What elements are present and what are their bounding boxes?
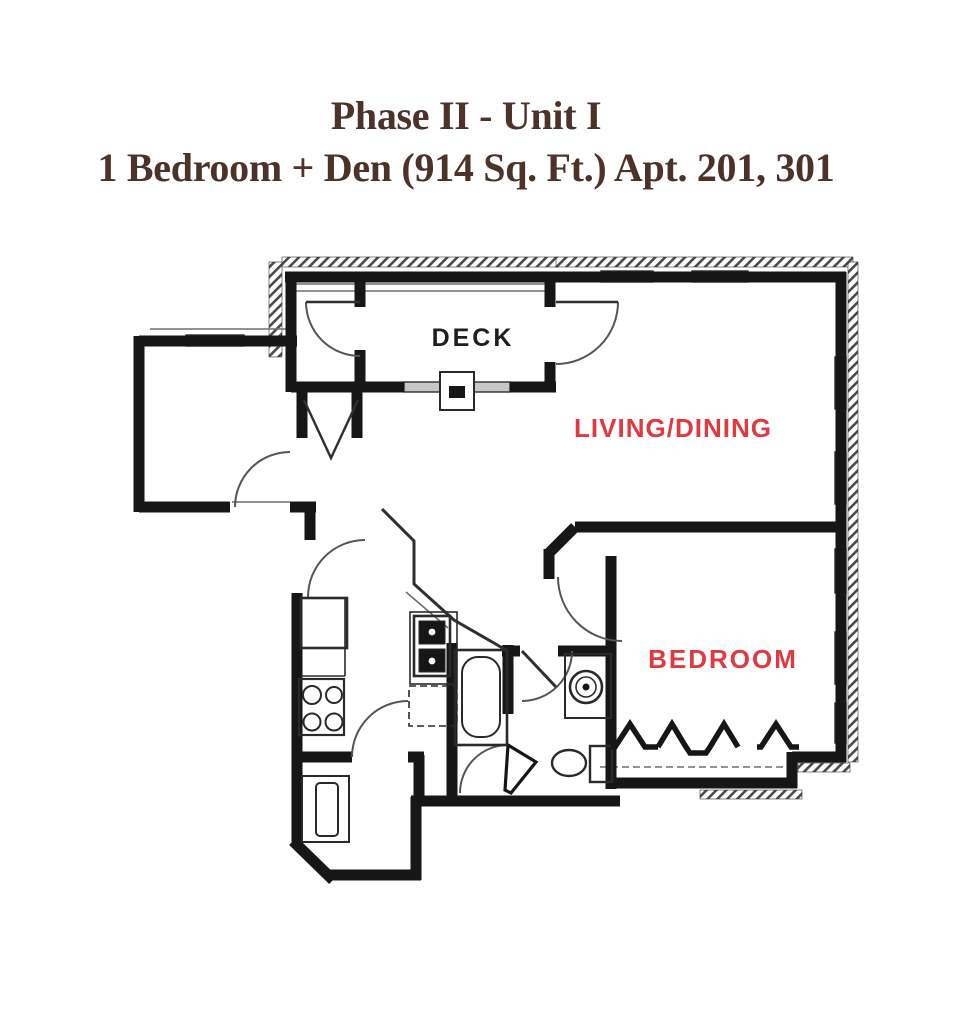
room-label-bedroom: BEDROOM (648, 644, 798, 674)
hanger-symbol (611, 724, 658, 747)
room-label-deck: DECK (432, 324, 515, 352)
page-title-line2: 1 Bedroom + Den (914 Sq. Ft.) Apt. 201, … (98, 145, 835, 190)
title-block: Phase II - Unit I 1 Bedroom + Den (914 S… (98, 93, 835, 190)
fridge (301, 598, 347, 648)
hanger-symbol (658, 724, 738, 753)
stove-burner (304, 714, 321, 731)
hall-kitchen-door-arc (308, 540, 365, 597)
sink-drain (429, 629, 436, 636)
closet-hangers (611, 724, 799, 753)
washer (316, 783, 338, 836)
deck-box-inner (449, 386, 465, 398)
bathroom-door-leaf (522, 651, 556, 687)
hanger-symbol (757, 724, 799, 747)
storage-door-arc (306, 302, 360, 356)
walls-layer (139, 272, 846, 880)
sink-drain (429, 658, 436, 665)
hatch-deck-top (282, 257, 558, 267)
stove-burner (303, 686, 321, 704)
toilet-bowl (552, 750, 586, 776)
floor-plan-page: Phase II - Unit I 1 Bedroom + Den (914 S… (0, 0, 960, 1024)
bifold-closet-door (304, 400, 358, 458)
floor-plan-svg: Phase II - Unit I 1 Bedroom + Den (914 S… (0, 0, 960, 1024)
kitchen-foyer-door-arc (352, 701, 408, 757)
hatch-right-wall (848, 262, 858, 762)
hatch-step (798, 763, 850, 772)
foyer-door-arc (460, 745, 508, 793)
living-door-arc (556, 302, 618, 364)
laundry-closet (302, 776, 349, 842)
hatch-living-top (556, 257, 853, 267)
bathroom-sink-drain (583, 684, 590, 691)
foyer-door-leaf (505, 745, 536, 793)
bathtub (462, 657, 500, 737)
stove-burner (326, 687, 342, 703)
den-door-arc (235, 452, 290, 507)
room-label-living-dining: LIVING/DINING (574, 413, 772, 443)
stove-burner (326, 714, 343, 731)
hatch-bedroom-bottom (700, 790, 802, 799)
corridor-walls-layer (304, 400, 506, 650)
page-title-line1: Phase II - Unit I (331, 93, 602, 138)
wall-foyer-chamfer (293, 841, 333, 880)
kitchen-counter-line (301, 598, 345, 676)
